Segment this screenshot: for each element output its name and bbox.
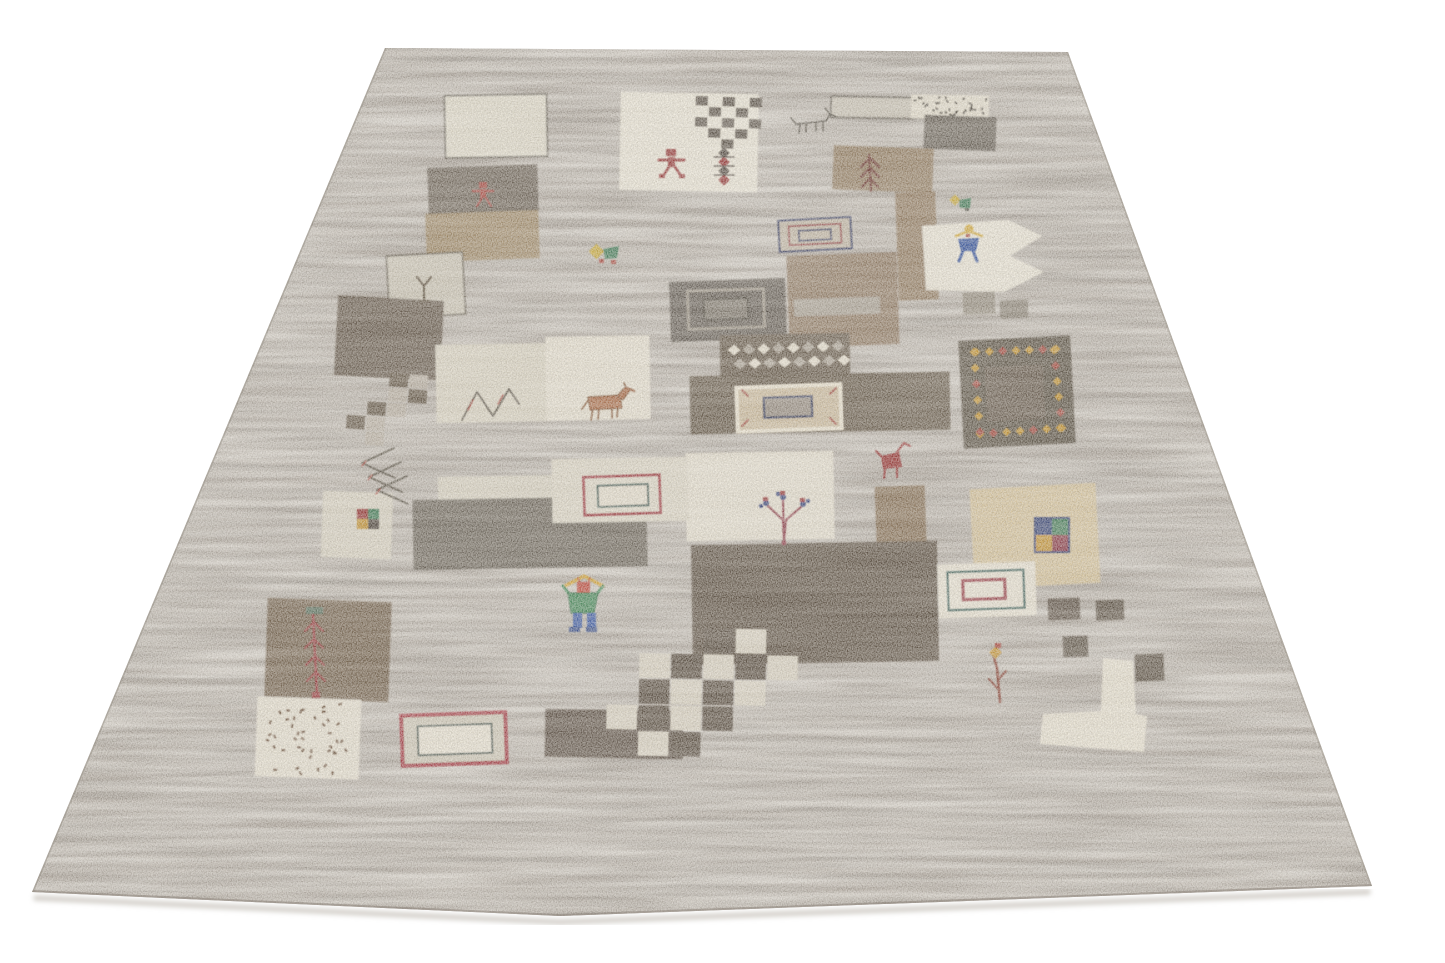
streak-over-layer (0, 0, 1445, 963)
gabbeh-rug-photo (0, 0, 1445, 963)
photo-canvas (0, 0, 1445, 963)
wool-grain-texture (0, 0, 1445, 963)
